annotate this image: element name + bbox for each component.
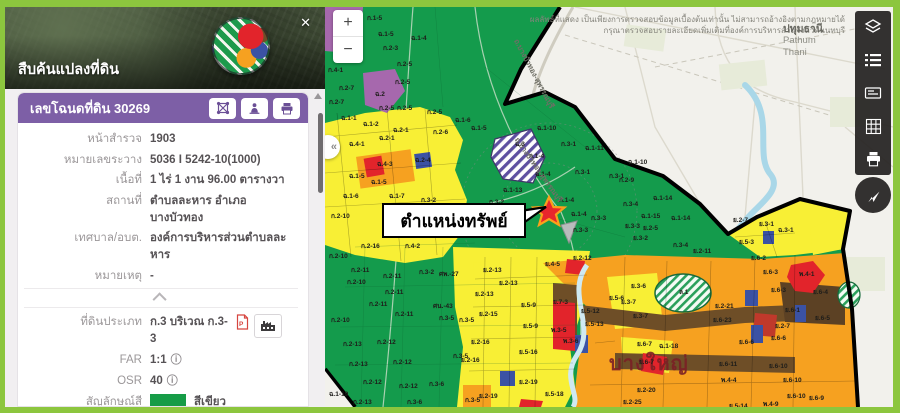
zoning-map[interactable]: {"":""} <box>325 7 893 407</box>
printer-icon <box>865 151 882 167</box>
field-row: เนื้อที่ 1 ไร่ 1 งาน 96.00 ตารางวา <box>24 172 298 189</box>
layers-button[interactable] <box>863 17 883 37</box>
parcel-card: เลขโฉนดที่ดิน 30269 <box>17 92 309 407</box>
svg-text:P: P <box>239 321 244 328</box>
measure-button[interactable] <box>863 83 883 103</box>
factory-usage-button[interactable] <box>254 314 282 338</box>
chevron-up-icon <box>153 293 167 307</box>
zoom-out-button[interactable]: − <box>333 37 363 63</box>
legend-list-button[interactable] <box>863 50 883 70</box>
field-row: เทศบาล/อบต. องค์การบริหารส่วนตำบลละหาร <box>24 230 298 263</box>
field-row: FAR 1:1ⓘ <box>24 352 298 369</box>
field-row: หมายเลขระวาง 5036 I 5242-10(1000) <box>24 152 298 169</box>
deed-header-bar: เลขโฉนดที่ดิน 30269 <box>18 93 308 123</box>
zoom-in-button[interactable]: + <box>333 10 363 37</box>
scrollbar-up-arrow[interactable] <box>314 93 322 99</box>
parcel-panel: สืบค้นแปลงที่ดิน ✕ เลขโฉนดที่ดิน 30269 <box>5 7 325 407</box>
grid-icon <box>865 118 882 135</box>
printer-icon <box>280 102 294 115</box>
person-pin-icon <box>248 102 261 115</box>
print-button[interactable] <box>273 98 300 119</box>
panel-title: สืบค้นแปลงที่ดิน <box>18 58 119 81</box>
app-window: สืบค้นแปลงที่ดิน ✕ เลขโฉนดที่ดิน 30269 <box>5 7 893 407</box>
locate-button[interactable] <box>855 177 891 213</box>
field-row: หน้าสำรวจ 1903 <box>24 131 298 148</box>
parcel-geometry-button[interactable] <box>209 98 236 119</box>
info-icon[interactable]: ⓘ <box>167 375 178 387</box>
section-collapse[interactable] <box>24 288 298 308</box>
grid-legend-button[interactable] <box>863 116 883 136</box>
info-icon[interactable]: ⓘ <box>171 354 182 366</box>
scrollbar-thumb[interactable] <box>318 113 323 193</box>
navigation-arrow-icon <box>864 186 882 204</box>
panel-body: เลขโฉนดที่ดิน 30269 <box>5 89 325 407</box>
panel-header-satellite: สืบค้นแปลงที่ดิน ✕ <box>5 7 325 89</box>
field-row: สถานที่ ตำบลละหาร อำเภอบางบัวทอง <box>24 193 298 226</box>
field-row: OSR 40ⓘ <box>24 373 298 390</box>
property-callout: ตำแหน่งทรัพย์ <box>382 203 526 238</box>
field-row: สัญลักษณ์สี สีเขียว ชนบทและเกษตรกรรม <box>24 394 298 407</box>
print-map-button[interactable] <box>863 149 883 169</box>
street-view-button[interactable] <box>241 98 268 119</box>
legend-color-swatch <box>150 394 186 407</box>
list-icon <box>864 52 882 68</box>
pdf-file-icon[interactable]: P <box>236 314 249 330</box>
field-row: หมายเหตุ - <box>24 268 298 285</box>
card-lines-icon <box>864 86 882 100</box>
map-toolbar <box>855 11 891 175</box>
close-icon[interactable]: ✕ <box>300 15 311 31</box>
parcel-fields: หน้าสำรวจ 1903 หมายเลขระวาง 5036 I 5242-… <box>18 123 308 407</box>
zoning-magnifier-inset <box>212 17 270 75</box>
wireframe-box-icon <box>216 101 230 115</box>
zoom-control: + − <box>333 10 363 63</box>
deed-number: เลขโฉนดที่ดิน 30269 <box>30 98 204 119</box>
factory-icon <box>260 320 276 332</box>
field-row: ที่ดินประเภท ก.3 บริเวณ ก.3-3 P <box>24 314 298 347</box>
layers-icon <box>864 18 882 36</box>
